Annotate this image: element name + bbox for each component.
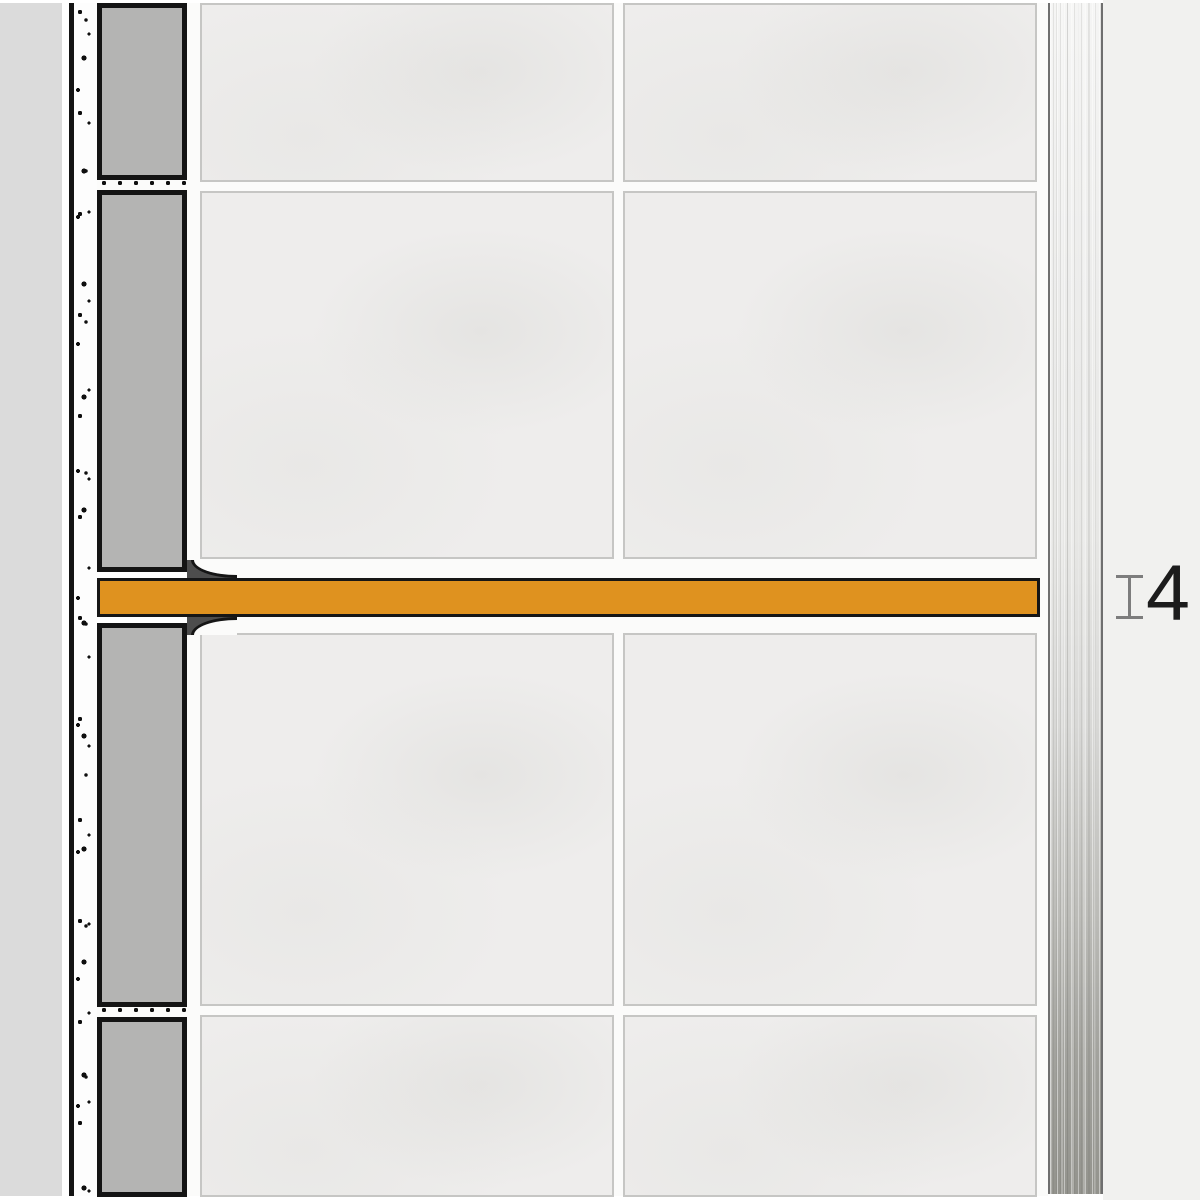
tile-cross-section: [97, 190, 187, 572]
mortar-joint: [97, 1007, 187, 1017]
tile-face: [200, 191, 614, 559]
wall-substrate: [0, 3, 62, 1196]
diagram-canvas: 4: [0, 0, 1200, 1200]
dimension-extent-icon: [1128, 575, 1131, 619]
tile-face: [623, 1015, 1037, 1197]
tile-cross-section: [97, 623, 187, 1007]
dimension-extent-icon: [1116, 616, 1143, 619]
tile-cross-section: [97, 1017, 187, 1197]
steel-profile-edge: [1048, 3, 1103, 1194]
shelf-profile: [97, 578, 1040, 617]
dimension-label: 4: [1146, 556, 1200, 632]
tile-face: [623, 633, 1037, 1006]
adhesive-fillet-top: [187, 560, 237, 578]
tile-face: [200, 633, 614, 1006]
tile-face: [200, 1015, 614, 1197]
tile-face: [200, 3, 614, 182]
mortar-joint: [97, 180, 187, 190]
tile-face: [623, 191, 1037, 559]
mortar-bed-speckle: [74, 3, 97, 1196]
tile-face: [623, 3, 1037, 182]
adhesive-fillet-bottom: [187, 617, 237, 635]
tile-cross-section: [97, 3, 187, 180]
